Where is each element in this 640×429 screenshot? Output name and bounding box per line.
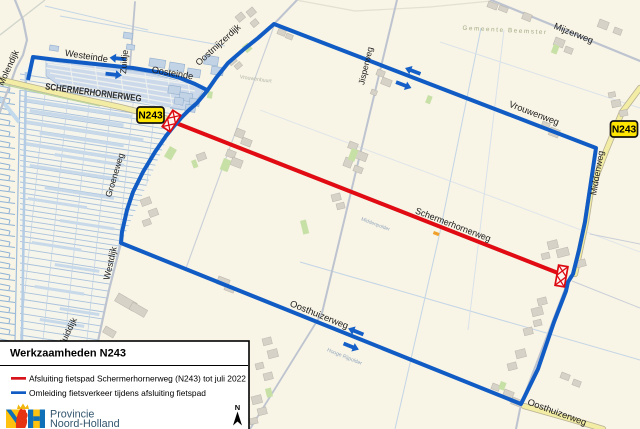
svg-text:Zuidje: Zuidje <box>118 49 130 74</box>
svg-text:N243: N243 <box>138 111 163 122</box>
svg-text:Werkzaamheden N243: Werkzaamheden N243 <box>10 348 126 360</box>
svg-text:N: N <box>235 403 240 412</box>
svg-text:Afsluiting fietspad Schermerho: Afsluiting fietspad Schermerhornerweg (N… <box>29 374 246 384</box>
svg-text:N243: N243 <box>612 125 637 136</box>
svg-text:Omleiding fietsverkeer tijdens: Omleiding fietsverkeer tijdens afsluitin… <box>29 388 206 398</box>
svg-text:Noord-Holland: Noord-Holland <box>50 418 120 429</box>
